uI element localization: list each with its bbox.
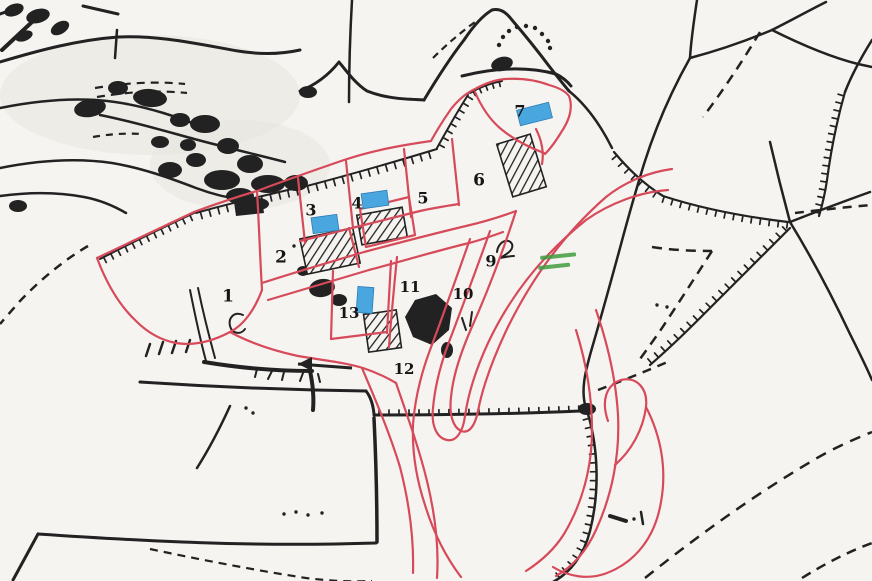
plot-label-3: 3 [305,201,316,220]
pit-dot [501,35,505,39]
plot-label-12: 12 [394,360,415,378]
plot-label-4: 4 [351,194,362,213]
pit-dot [533,26,537,30]
small-dot [632,517,635,520]
building-blob [158,162,182,178]
scanned-map-page: 1234567910111213 [0,0,872,581]
small-dot [244,406,247,409]
building-blob [190,115,220,133]
small-dot [320,511,323,514]
plot-label-5: 5 [417,189,428,208]
pit-dot [497,43,501,47]
small-dot [665,305,668,308]
plot-label-6: 6 [473,171,485,191]
pit-dot [524,24,528,28]
plot-label-7: 7 [514,102,525,121]
small-dot [306,513,309,516]
building-blob [217,138,239,154]
building-blob [151,136,169,148]
building-blob [204,170,240,190]
building-blob [237,155,263,173]
pit-dot [507,29,511,33]
building-blob [170,113,190,127]
plot-label-9: 9 [485,252,496,271]
pit-dot [548,46,552,50]
building-blob [108,81,128,95]
small-dot [655,303,658,306]
building-blob [180,139,196,151]
plot-label-2: 2 [275,248,287,268]
building-blob [299,86,317,98]
pit-dot [515,25,519,29]
building-blob [9,200,27,212]
building-solid [234,199,264,216]
pit-dot [546,39,550,43]
small-dot [292,244,295,247]
building-hatched [364,310,402,352]
small-dot [294,510,297,513]
building-blob [186,153,206,167]
pit-dot [540,32,544,36]
small-dot [282,512,285,515]
plot-label-13: 13 [339,304,360,322]
plot-label-11: 11 [400,278,421,296]
plot-label-10: 10 [453,285,474,303]
water-feature [361,190,389,208]
small-dot [251,411,254,414]
plot-label-1: 1 [222,287,234,307]
scanned-map-image: 1234567910111213 [0,0,872,581]
building-blob [578,403,596,415]
